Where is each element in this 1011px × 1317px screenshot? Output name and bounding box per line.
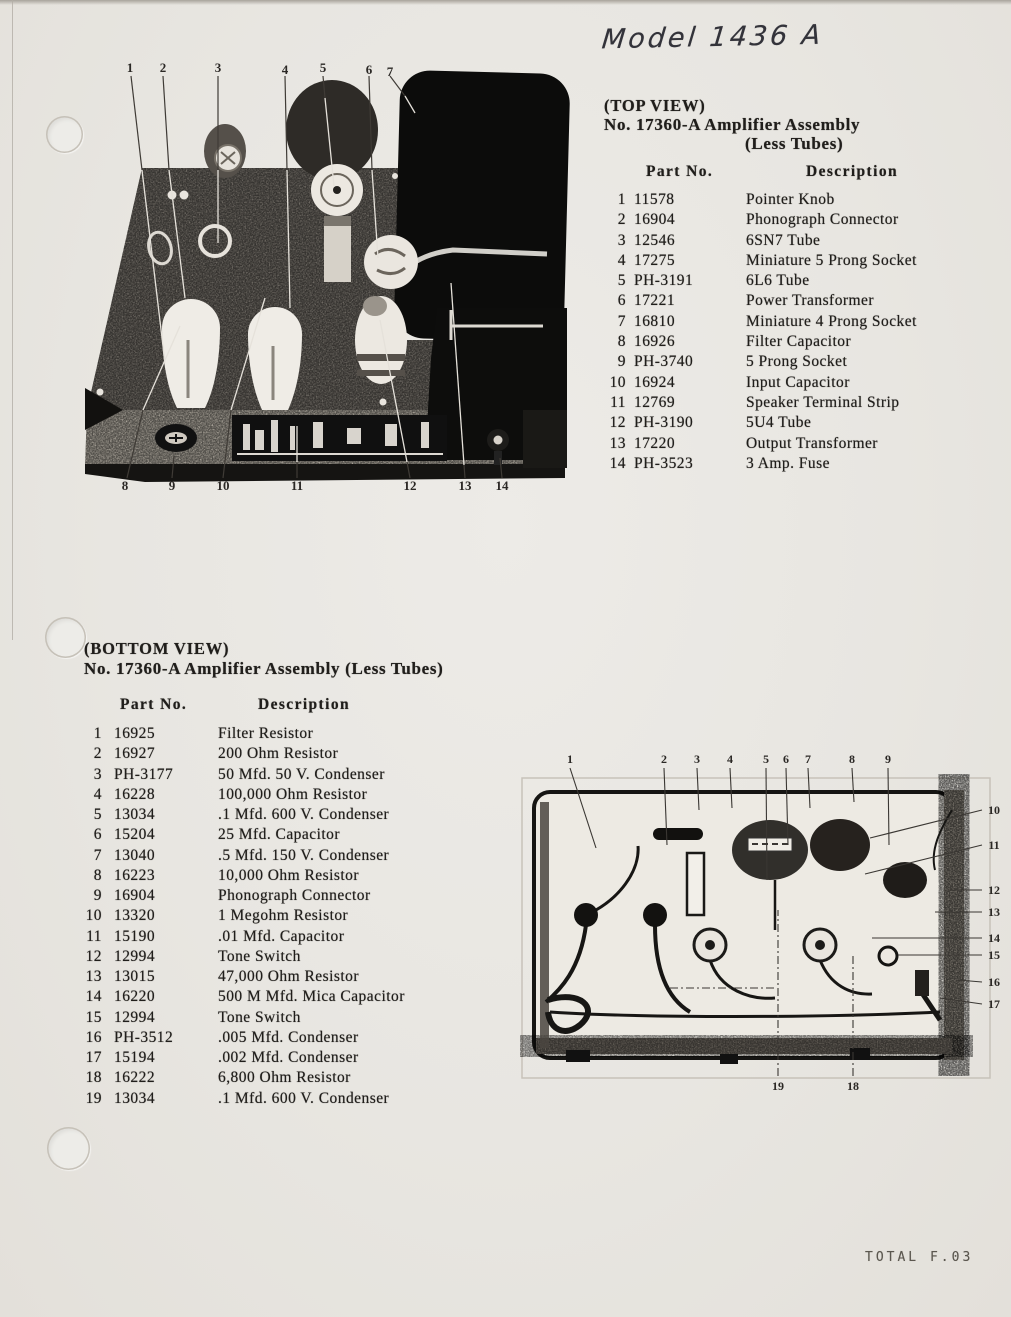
part-index: 11	[78, 928, 102, 946]
bottom-view-label: (BOTTOM VIEW)	[84, 639, 229, 659]
part-index: 9	[600, 353, 626, 371]
part-description: Output Transformer	[746, 435, 1004, 453]
part-number: 15194	[114, 1049, 206, 1067]
top-photo-callout-9: 9	[169, 478, 176, 493]
part-index: 5	[78, 806, 102, 824]
bottom-photo-callout-19: 19	[772, 1079, 784, 1093]
part-description: Power Transformer	[746, 292, 1004, 310]
table-row: 1 16925 Filter Resistor	[78, 725, 518, 745]
part-description: Pointer Knob	[746, 191, 1004, 209]
top-view-subtitle: (Less Tubes)	[745, 134, 843, 154]
part-index: 10	[78, 907, 102, 925]
part-description: 6,800 Ohm Resistor	[218, 1069, 518, 1087]
bottom-photo-callout-17: 17	[988, 997, 1000, 1011]
fuse-cap	[494, 436, 503, 445]
bottom-photo-callout-14: 14	[988, 931, 1000, 945]
part-description: 10,000 Ohm Resistor	[218, 867, 518, 885]
table-row: 8 16926 Filter Capacitor	[600, 333, 1004, 353]
top-photo-callout-5: 5	[320, 60, 327, 75]
part-number: 16228	[114, 786, 206, 804]
bottom-photo-callout-10: 10	[988, 803, 1000, 817]
tube-5u4-band1	[357, 354, 405, 361]
table-row: 16 PH-3512 .005 Mfd. Condenser	[78, 1029, 518, 1049]
part-number: PH-3177	[114, 766, 206, 784]
bottom-photo-callout-3: 3	[694, 752, 700, 766]
bottom-photo-callout-11: 11	[988, 838, 999, 852]
part-number: 16904	[114, 887, 206, 905]
tube-5u4-band2	[357, 370, 405, 376]
socket-left-center	[705, 940, 715, 950]
table-row: 9 16904 Phonograph Connector	[78, 887, 518, 907]
part-description: Filter Capacitor	[746, 333, 1004, 351]
part-index: 7	[78, 847, 102, 865]
part-number: 16927	[114, 745, 206, 763]
scanned-page: Model 1436 A	[0, 0, 1011, 1317]
part-description: Speaker Terminal Strip	[746, 394, 1004, 412]
part-index: 19	[78, 1090, 102, 1108]
bottom-parts-table: 1 16925 Filter Resistor 2 16927 200 Ohm …	[78, 725, 518, 1110]
table-row: 19 13034 .1 Mfd. 600 V. Condenser	[78, 1090, 518, 1110]
tube-5u4-top	[363, 296, 387, 316]
table-row: 5 PH-3191 6L6 Tube	[600, 272, 1004, 292]
table-row: 17 15194 .002 Mfd. Condenser	[78, 1049, 518, 1069]
table-row: 13 17220 Output Transformer	[600, 435, 1004, 455]
left-rail	[540, 802, 549, 1048]
table-row: 7 16810 Miniature 4 Prong Socket	[600, 313, 1004, 333]
table-row: 3 12546 6SN7 Tube	[600, 232, 1004, 252]
part-number: 11578	[634, 191, 738, 209]
part-description: Miniature 4 Prong Socket	[746, 313, 1004, 331]
part-index: 15	[78, 1009, 102, 1027]
right-band-noise	[940, 788, 968, 1062]
tube-dial-stem-shadow	[324, 216, 351, 226]
table-row: 6 15204 25 Mfd. Capacitor	[78, 826, 518, 846]
punch-hole-bottom	[47, 1127, 90, 1170]
part-description: Tone Switch	[218, 1009, 518, 1027]
bottom-photo-callout-4: 4	[727, 752, 733, 766]
part-number: 16220	[114, 988, 206, 1006]
part-number: 16223	[114, 867, 206, 885]
table-row: 2 16927 200 Ohm Resistor	[78, 745, 518, 765]
grommet-2	[180, 191, 189, 200]
part-description: Phonograph Connector	[746, 211, 1004, 229]
scan-fold-line	[12, 0, 13, 640]
table-row: 8 16223 10,000 Ohm Resistor	[78, 867, 518, 887]
part-description: 200 Ohm Resistor	[218, 745, 518, 763]
top-photo-callout-10: 10	[217, 478, 230, 493]
top-photo-callout-12: 12	[404, 478, 417, 493]
part-index: 11	[600, 394, 626, 412]
chassis-bottom-edge	[85, 464, 565, 482]
scan-edge-shadow	[0, 0, 1011, 5]
table-row: 10 16924 Input Capacitor	[600, 374, 1004, 394]
part-description: .005 Mfd. Condenser	[218, 1029, 518, 1047]
top-photo-callout-8: 8	[122, 478, 129, 493]
part-index: 17	[78, 1049, 102, 1067]
part-description: Tone Switch	[218, 948, 518, 966]
part-index: 4	[600, 252, 626, 270]
handwritten-model-title: Model 1436 A	[600, 20, 825, 56]
bottom-photo-callout-9: 9	[885, 752, 891, 766]
table-row: 15 12994 Tone Switch	[78, 1009, 518, 1029]
bottom-photo-callout-1: 1	[567, 752, 573, 766]
filter-capacitor-can	[364, 235, 418, 289]
bottom-photo-callout-5: 5	[763, 752, 769, 766]
table-row: 4 16228 100,000 Ohm Resistor	[78, 786, 518, 806]
top-view-title: No. 17360-A Amplifier Assembly	[604, 115, 860, 135]
part-number: PH-3523	[634, 455, 738, 473]
bottom-col-desc: Description	[258, 696, 350, 714]
bottom-photo-callout-2: 2	[661, 752, 667, 766]
table-row: 11 12769 Speaker Terminal Strip	[600, 394, 1004, 414]
top-photo-callout-14: 14	[496, 478, 510, 493]
part-description: 5U4 Tube	[746, 414, 1004, 432]
table-row: 9 PH-3740 5 Prong Socket	[600, 353, 1004, 373]
part-index: 12	[78, 948, 102, 966]
top-parts-table: 1 11578 Pointer Knob 2 16904 Phonograph …	[600, 191, 1004, 475]
part-index: 18	[78, 1069, 102, 1087]
part-number: PH-3740	[634, 353, 738, 371]
electrolytic-capacitor	[687, 853, 704, 915]
top-photo-callout-3: 3	[215, 60, 222, 75]
part-description: Filter Resistor	[218, 725, 518, 743]
part-index: 3	[600, 232, 626, 250]
part-description: 3 Amp. Fuse	[746, 455, 1004, 473]
bottom-photo-callout-18: 18	[847, 1079, 859, 1093]
part-index: 2	[78, 745, 102, 763]
part-index: 16	[78, 1029, 102, 1047]
punch-hole-middle	[45, 617, 86, 658]
bottom-col-part: Part No.	[120, 696, 187, 714]
part-description: 50 Mfd. 50 V. Condenser	[218, 766, 518, 784]
table-row: 1 11578 Pointer Knob	[600, 191, 1004, 211]
bottom-view-photo: 1 2 3 4 5 6 7 8 9 10 11 12 13 14 15 16 1…	[520, 750, 1010, 1102]
part-number: 15204	[114, 826, 206, 844]
part-number: 17220	[634, 435, 738, 453]
part-description: 5 Prong Socket	[746, 353, 1004, 371]
part-description: .002 Mfd. Condenser	[218, 1049, 518, 1067]
part-description: .1 Mfd. 600 V. Condenser	[218, 1090, 518, 1108]
part-number: 13040	[114, 847, 206, 865]
part-number: 15190	[114, 928, 206, 946]
table-row: 12 PH-3190 5U4 Tube	[600, 414, 1004, 434]
tube-6l6-left	[162, 299, 220, 408]
table-row: 14 16220 500 M Mfd. Mica Capacitor	[78, 988, 518, 1008]
table-row: 3 PH-3177 50 Mfd. 50 V. Condenser	[78, 766, 518, 786]
part-number: 13034	[114, 1090, 206, 1108]
part-index: 2	[600, 211, 626, 229]
foot-left	[566, 1050, 590, 1062]
table-row: 2 16904 Phonograph Connector	[600, 211, 1004, 231]
top-photo-callout-6: 6	[366, 62, 373, 77]
bottom-photo-callout-8: 8	[849, 752, 855, 766]
fax-footer: TOTAL F.03	[865, 1250, 973, 1265]
part-description: 500 M Mfd. Mica Capacitor	[218, 988, 518, 1006]
table-row: 11 15190 .01 Mfd. Capacitor	[78, 928, 518, 948]
part-number: 16924	[634, 374, 738, 392]
part-description: 6SN7 Tube	[746, 232, 1004, 250]
table-row: 6 17221 Power Transformer	[600, 292, 1004, 312]
top-photo-callout-7: 7	[387, 64, 394, 79]
table-row: 10 13320 1 Megohm Resistor	[78, 907, 518, 927]
bottom-view-title: No. 17360-A Amplifier Assembly (Less Tub…	[84, 659, 444, 679]
part-description: Phonograph Connector	[218, 887, 518, 905]
part-number: 12994	[114, 948, 206, 966]
part-number: 16926	[634, 333, 738, 351]
part-index: 14	[78, 988, 102, 1006]
bottom-photo-callout-15: 15	[988, 948, 1000, 962]
bottom-band-noise	[536, 1036, 952, 1056]
part-number: 17221	[634, 292, 738, 310]
top-photo-callout-11: 11	[291, 478, 303, 493]
part-number: PH-3512	[114, 1029, 206, 1047]
part-index: 13	[78, 968, 102, 986]
right-edge-shadow	[523, 410, 567, 468]
choke-cluster	[810, 819, 870, 871]
bottom-photo-callout-16: 16	[988, 975, 1000, 989]
top-photo-callout-2: 2	[160, 60, 167, 75]
top-photo-callout-13: 13	[459, 478, 473, 493]
part-number: 12546	[634, 232, 738, 250]
punch-hole-top	[46, 116, 83, 153]
part-number: 16222	[114, 1069, 206, 1087]
grommet-right	[643, 903, 667, 927]
part-number: PH-3190	[634, 414, 738, 432]
part-description: 6L6 Tube	[746, 272, 1004, 290]
part-number: 12994	[114, 1009, 206, 1027]
table-row: 13 13015 47,000 Ohm Resistor	[78, 968, 518, 988]
part-index: 6	[78, 826, 102, 844]
table-row: 12 12994 Tone Switch	[78, 948, 518, 968]
part-number: 16904	[634, 211, 738, 229]
part-number: 12769	[634, 394, 738, 412]
grommet-right-side	[879, 947, 897, 965]
table-row: 14 PH-3523 3 Amp. Fuse	[600, 455, 1004, 475]
part-description: Input Capacitor	[746, 374, 1004, 392]
top-view-label: (TOP VIEW)	[604, 96, 706, 116]
top-view-photo: 1 2 3 4 5 6 7 8 9 10 11 12 13 14	[85, 58, 572, 510]
part-number: 13015	[114, 968, 206, 986]
part-number: PH-3191	[634, 272, 738, 290]
socket-right-center	[815, 940, 825, 950]
part-number: 16925	[114, 725, 206, 743]
part-description: Miniature 5 Prong Socket	[746, 252, 1004, 270]
part-index: 3	[78, 766, 102, 784]
resistor-right	[915, 970, 929, 996]
part-description: .1 Mfd. 600 V. Condenser	[218, 806, 518, 824]
bottom-photo-callout-13: 13	[988, 905, 1000, 919]
mount-hole-2	[380, 399, 387, 406]
part-number: 16810	[634, 313, 738, 331]
part-index: 5	[600, 272, 626, 290]
part-index: 10	[600, 374, 626, 392]
table-row: 7 13040 .5 Mfd. 150 V. Condenser	[78, 847, 518, 867]
top-col-part: Part No.	[646, 163, 713, 181]
part-index: 1	[78, 725, 102, 743]
bottom-photo-callout-7: 7	[805, 752, 811, 766]
table-row: 18 16222 6,800 Ohm Resistor	[78, 1069, 518, 1089]
mount-hole-1	[97, 389, 104, 396]
part-number: 13034	[114, 806, 206, 824]
part-index: 8	[600, 333, 626, 351]
foot-middle	[720, 1054, 738, 1064]
part-index: 12	[600, 414, 626, 432]
bottom-photo-callout-12: 12	[988, 883, 1000, 897]
grommet-left	[574, 903, 598, 927]
tube-dial-center	[333, 186, 341, 194]
part-description: 25 Mfd. Capacitor	[218, 826, 518, 844]
table-row: 5 13034 .1 Mfd. 600 V. Condenser	[78, 806, 518, 826]
part-index: 1	[600, 191, 626, 209]
part-number: 17275	[634, 252, 738, 270]
part-number: 13320	[114, 907, 206, 925]
top-photo-callout-1: 1	[127, 60, 134, 75]
resistor-bar	[653, 828, 703, 840]
power-transformer	[394, 70, 571, 342]
part-description: .01 Mfd. Capacitor	[218, 928, 518, 946]
part-description: .5 Mfd. 150 V. Condenser	[218, 847, 518, 865]
part-index: 7	[600, 313, 626, 331]
bottom-photo-callout-6: 6	[783, 752, 789, 766]
top-photo-callout-4: 4	[282, 62, 289, 77]
part-description: 47,000 Ohm Resistor	[218, 968, 518, 986]
part-index: 6	[600, 292, 626, 310]
part-description: 1 Megohm Resistor	[218, 907, 518, 925]
part-index: 4	[78, 786, 102, 804]
part-description: 100,000 Ohm Resistor	[218, 786, 518, 804]
part-index: 8	[78, 867, 102, 885]
part-index: 14	[600, 455, 626, 473]
mount-hole-3	[392, 173, 398, 179]
table-row: 4 17275 Miniature 5 Prong Socket	[600, 252, 1004, 272]
top-col-desc: Description	[806, 163, 898, 181]
part-index: 13	[600, 435, 626, 453]
part-index: 9	[78, 887, 102, 905]
